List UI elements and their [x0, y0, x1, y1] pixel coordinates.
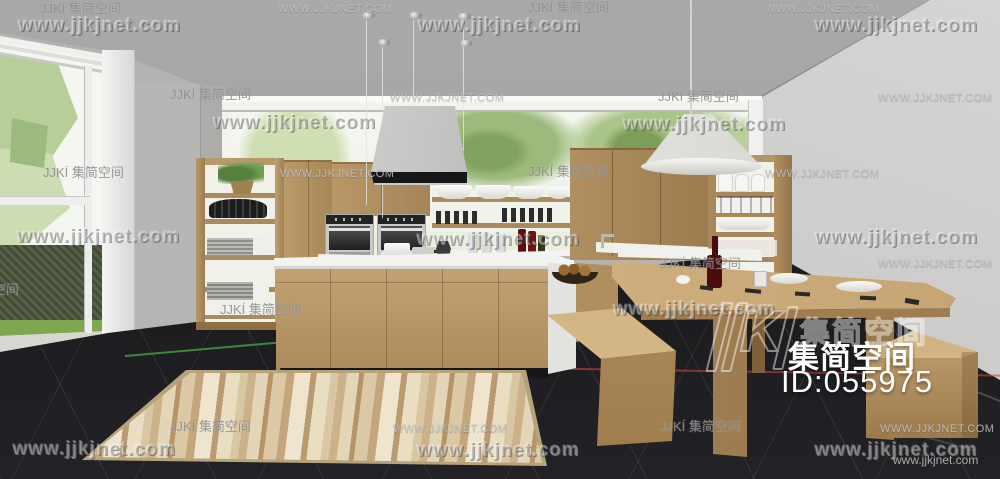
- light-cord-3: [413, 20, 414, 106]
- pendant-lamp-cord: [690, 0, 692, 116]
- ceiling-light-2: [408, 12, 422, 19]
- shelf-board-3: [205, 255, 275, 260]
- right-shelf-bowls: [717, 218, 771, 230]
- plate-stack-2: [207, 282, 253, 300]
- range-hood-vent-trim: [374, 183, 467, 185]
- wine-bottle-body: [707, 255, 722, 288]
- window-frame-top-line: [222, 110, 762, 112]
- pendant-lamp-rim: [641, 158, 762, 175]
- wine-bottle-neck: [712, 236, 718, 257]
- island-front: [276, 269, 548, 373]
- shelf-board-2: [205, 219, 275, 224]
- small-bowl-table: [676, 275, 690, 284]
- shelf-board-5: [205, 315, 275, 319]
- white-jar-2: [253, 284, 269, 300]
- oven-left: [325, 214, 374, 258]
- light-cord-1: [366, 20, 367, 205]
- plate-1: [770, 273, 808, 284]
- bowl-3: [513, 186, 545, 199]
- image-id-text: ID:055975: [781, 364, 933, 400]
- spice-jar-row-1: [436, 211, 478, 224]
- ceiling-light-1: [361, 12, 375, 19]
- island-door-seam-2: [386, 269, 387, 373]
- right-shelf-board-2: [716, 213, 774, 217]
- window-frame-top-highlight: [222, 96, 762, 102]
- island-rail-line: [276, 282, 548, 283]
- island-door-seam-1: [330, 269, 331, 373]
- spice-jar-row-2: [502, 208, 554, 222]
- oven-right-handle: [381, 228, 422, 231]
- bench-right-shade: [962, 352, 978, 438]
- bowl-2: [475, 185, 511, 199]
- door-rail: [0, 196, 90, 205]
- canister-3: [751, 174, 765, 192]
- canister-2: [735, 174, 749, 192]
- shelf-unit-left-side-l: [196, 158, 205, 330]
- right-shelf-board-3: [716, 232, 774, 237]
- ceiling-light-3: [457, 13, 471, 20]
- oven-left-handle: [329, 228, 370, 231]
- white-jar-1: [254, 236, 270, 254]
- cutlery-4: [860, 296, 876, 301]
- drinking-glass: [754, 271, 767, 287]
- potted-plant-foliage: [218, 162, 264, 184]
- island-door-seam-3: [442, 269, 443, 373]
- right-wall-cabinet-seam-1: [612, 150, 613, 256]
- kitchen-render: www.jjkjnet.comwww.jjkjnet.comwww.jjkjne…: [0, 0, 1000, 479]
- plate-stack-1: [207, 238, 253, 255]
- plate-2: [836, 281, 882, 292]
- ceiling-light-5: [459, 40, 472, 47]
- canister-1: [718, 172, 733, 192]
- black-plates-rack: [209, 199, 267, 218]
- ceiling-light-4: [377, 39, 390, 46]
- bowl-1: [436, 185, 472, 199]
- oven-left-control-dots: [335, 218, 363, 221]
- door-frame-column: [102, 50, 135, 335]
- faucet-spout: [601, 234, 614, 237]
- shelf-unit-left-base: [196, 322, 284, 330]
- island-door-seam-4: [498, 269, 499, 373]
- left-wall: [133, 84, 200, 334]
- oven-right-control-dots: [387, 218, 415, 221]
- stemware-rack: [717, 196, 773, 213]
- fruit-cluster: [558, 264, 594, 276]
